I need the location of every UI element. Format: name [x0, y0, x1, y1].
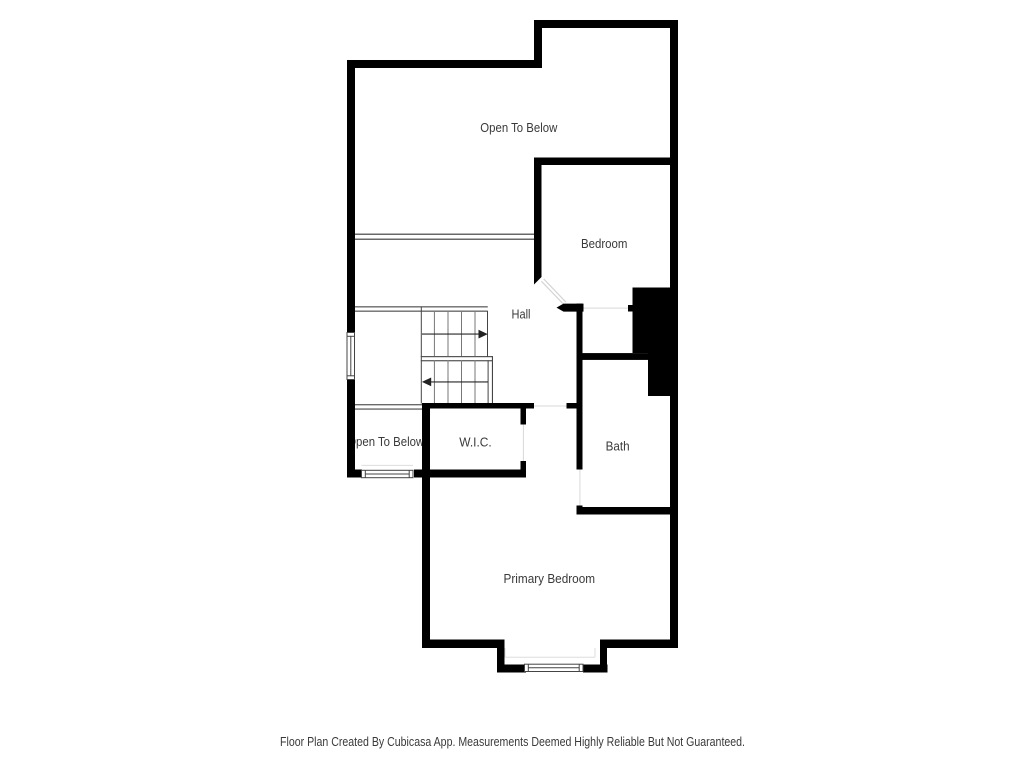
svg-text:Open To Below: Open To Below — [347, 434, 425, 449]
svg-text:W.I.C.: W.I.C. — [459, 435, 492, 450]
svg-text:Open To Below: Open To Below — [480, 120, 558, 135]
svg-text:Primary Bedroom: Primary Bedroom — [504, 571, 596, 586]
svg-text:Bath: Bath — [606, 438, 630, 453]
svg-text:Bedroom: Bedroom — [581, 236, 628, 251]
svg-text:Hall: Hall — [512, 306, 531, 321]
svg-text:Floor Plan Created By Cubicasa: Floor Plan Created By Cubicasa App. Meas… — [280, 735, 745, 749]
